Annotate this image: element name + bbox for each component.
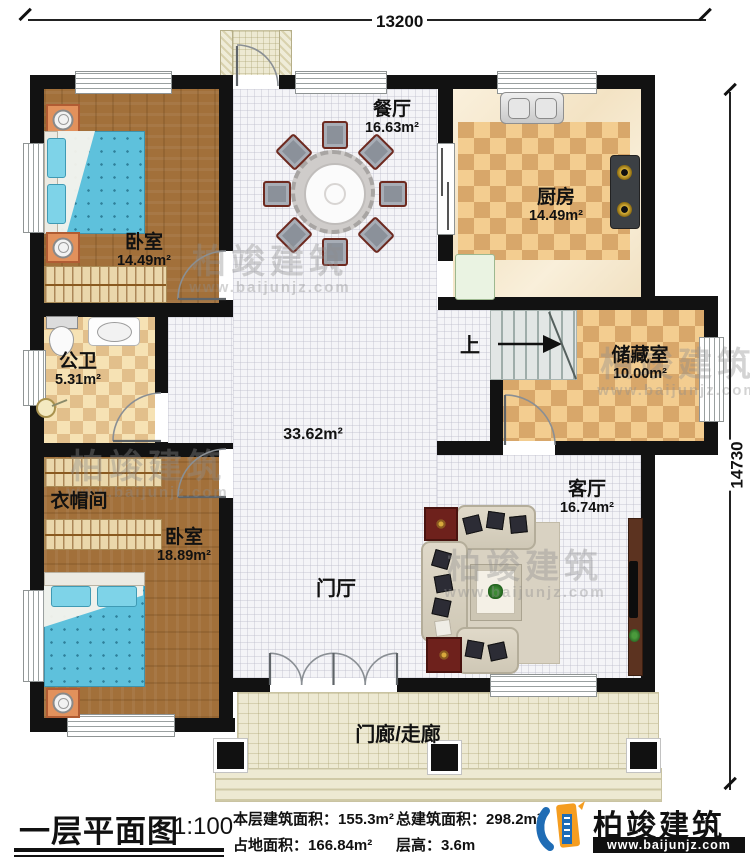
room-name: 卧室 [157,528,211,548]
dimension-top-value: 13200 [372,12,427,32]
window-kitchen-top [497,71,597,94]
dining-chair [263,181,291,207]
bedroom1-door-opening [219,251,233,300]
porch-column [630,742,657,769]
storage-door-opening [503,441,555,455]
room-area: 16.74m² [560,500,614,516]
bed-double [44,572,143,685]
plant-icon [488,584,503,599]
porch-steps [215,768,662,802]
stat-value: 166.84m² [308,837,372,854]
wall-living-right [641,441,655,692]
sink-bowl [508,98,530,119]
window-bedroom2-bottom [67,714,175,737]
wall-kitchen-right [641,75,655,310]
pillow [51,586,91,607]
cloakroom-rack [44,519,162,550]
bedroom2-door-opening [219,449,233,498]
dining-chair [322,238,348,266]
stat-storey-height: 层高：3.6m [396,834,475,855]
stairs-up-text: 上 [460,335,480,357]
floor-plan-page: 柏竣建筑 www.baijunjz.com 柏竣建筑 www.baijunjz.… [0,0,750,860]
dining-table [291,150,375,234]
dimension-line-top [28,19,706,21]
logo-flag [578,801,585,810]
pillow [47,138,66,178]
kitchen-sink [500,92,564,124]
wall-cloakroom-top [30,443,219,457]
room-label-bedroom2: 卧室 18.89m² [157,528,211,564]
title-rule [14,848,224,852]
fridge [455,254,495,300]
cushion [486,511,505,530]
room-label-bedroom1: 卧室 14.49m² [117,233,171,269]
window-bedroom1-left [23,143,46,233]
room-area: 10.00m² [611,366,668,382]
sofa-top [456,505,536,550]
window-bedroom2-left [23,590,46,682]
pillow [97,586,137,607]
tv-icon [629,561,638,618]
dining-chair [379,181,407,207]
end-table [424,507,458,541]
kitchen-entry-opening [438,261,453,297]
room-label-dining: 餐厅 16.63m² [365,100,419,136]
nightstand [46,688,80,718]
sofa-bottom [456,627,519,674]
stat-value: 298.2m² [486,811,542,828]
cushion [431,597,451,617]
room-label-kitchen: 厨房 14.49m² [529,188,583,224]
dimension-right-value: 14730 [728,439,748,490]
room-label-cloakroom: 衣帽间 [50,492,107,512]
plant-icon [629,629,640,642]
stat-value: 155.3m² [338,811,394,828]
staircase [490,310,577,380]
room-label-foyer: 门厅 [316,572,356,601]
room-area: 14.49m² [529,208,583,224]
wall-living-top [437,441,718,455]
main-door-opening [270,678,397,692]
nightstand [46,232,80,263]
sink-bowl [535,98,557,119]
sink-basin [97,322,132,342]
window-dining-top [295,71,387,94]
bathroom-sink [88,317,140,346]
pillow [47,184,66,224]
room-area: 33.62m² [283,426,343,444]
wall-under-stairs [490,378,503,441]
porch-column [431,744,458,771]
bathroom-door-opening [155,393,168,442]
cushion [434,619,452,637]
room-name: 门廊/走廊 [355,724,441,746]
brand-logo-icon [535,797,589,853]
kitchen-sliding-door [437,143,455,235]
top-porch-door-opening [233,75,279,89]
room-name: 衣帽间 [50,492,107,512]
room-name: 客厅 [560,480,614,500]
stat-value: 3.6m [441,837,475,854]
room-label-porch: 门廊/走廊 [355,718,441,747]
room-area: 5.31m² [55,372,101,388]
dining-chair [322,121,348,149]
room-name: 门厅 [316,578,356,600]
end-table [426,637,462,673]
room-name: 公卫 [55,352,101,372]
stat-label: 总建筑面积： [396,811,486,828]
room-name: 厨房 [529,188,583,208]
headboard [44,572,145,586]
room-area: 14.49m² [117,253,171,269]
cushion [465,640,485,660]
plan-scale: 1:100 [173,813,233,841]
room-label-living: 客厅 16.74m² [560,480,614,516]
shower-head [36,398,56,418]
title-rule [14,855,224,857]
cushion [434,574,454,594]
stove [610,155,640,229]
cushion [462,514,483,535]
window-bedroom1-top [75,71,172,94]
stat-footprint-area: 占地面积：166.84m² [233,834,372,855]
cushion [509,515,528,534]
cushion [431,549,452,570]
room-label-storage: 储藏室 10.00m² [611,346,668,382]
stat-label: 占地面积： [233,837,308,854]
stat-label: 本层建筑面积： [233,811,338,828]
room-area: 18.89m² [157,548,211,564]
lamp-icon [53,109,74,130]
bed-double [44,131,143,232]
corridor-floor [168,317,233,443]
burner-icon [617,202,632,217]
room-area: 16.63m² [365,120,419,136]
brand-url: www.baijunjz.com [593,837,745,853]
room-name: 储藏室 [611,346,668,366]
stairs-up-label: 上 [460,329,480,358]
lamp-icon [53,237,74,258]
window-storage-right [699,337,724,422]
hall-area-label: 33.62m² [283,426,343,444]
stat-floor-area: 本层建筑面积：155.3m² [233,808,394,829]
room-label-bathroom: 公卫 5.31m² [55,352,101,388]
cloakroom-rack [44,458,162,487]
coffee-table [470,564,522,621]
stat-total-area: 总建筑面积：298.2m² [396,808,542,829]
burner-icon [617,165,632,180]
room-name: 卧室 [117,233,171,253]
room-name: 餐厅 [365,100,419,120]
window-living-bottom [490,674,597,697]
plan-title: 一层平面图 [19,806,179,851]
logo-swoosh [540,811,550,847]
porch-column [217,742,244,769]
wall-bathroom-top [30,303,233,317]
toilet [46,316,76,356]
table-center [324,183,346,205]
wardrobe [44,266,167,303]
lamp-icon [53,693,74,714]
cushion [487,641,507,661]
stat-label: 层高： [396,837,441,854]
